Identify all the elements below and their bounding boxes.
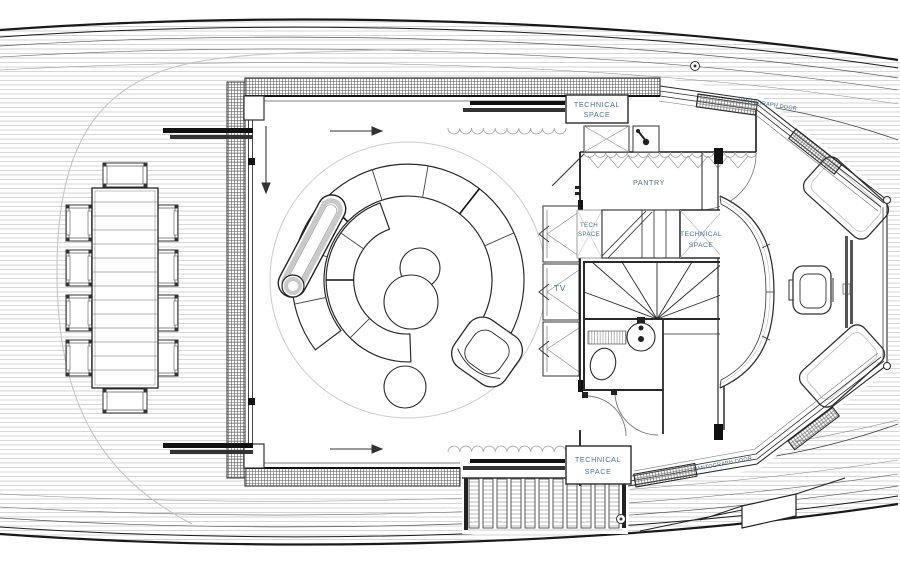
dining-chair [103, 389, 148, 414]
helm-chair [789, 266, 833, 314]
dining-chair [66, 295, 93, 332]
svg-text:SPACE: SPACE [689, 242, 714, 249]
upper-stair-flight [602, 210, 680, 258]
svg-text:SPACE: SPACE [584, 110, 611, 119]
dining-chair [66, 250, 93, 287]
technical-hatch-box [584, 126, 629, 152]
dining-chair [66, 340, 93, 377]
round-pouf [384, 366, 426, 408]
corner-post-top [244, 96, 264, 120]
round-table [384, 275, 438, 329]
dining-chair [66, 205, 93, 242]
label-tv: TV [554, 283, 566, 293]
deck-plan-canvas: TECHNICAL SPACE PANTRY TECH SPACE TECHNI… [0, 0, 900, 564]
tv-cabinet-wall [539, 200, 583, 392]
wc-step-hatch [588, 331, 626, 344]
label-technical-space-mid: TECHNICAL [680, 231, 722, 238]
label-pantry: PANTRY [633, 178, 665, 187]
label-technical-space-top: TECHNICAL [574, 100, 620, 109]
label-technical-space-bottom: TECHNICAL [575, 455, 621, 464]
main-fan-stairs [584, 262, 729, 319]
floor-lamp [282, 275, 304, 297]
label-tech-space-small: TECH [580, 222, 598, 229]
svg-text:SPACE: SPACE [585, 467, 612, 476]
dining-chair [103, 163, 148, 188]
technical-space-bottom-box [566, 446, 631, 484]
yacht-deck-plan: TECHNICAL SPACE PANTRY TECH SPACE TECHNI… [0, 0, 900, 564]
exterior-stairs [462, 478, 628, 530]
svg-text:SPACE: SPACE [578, 231, 600, 238]
galley-sink [633, 126, 659, 152]
dining-table [92, 188, 158, 388]
